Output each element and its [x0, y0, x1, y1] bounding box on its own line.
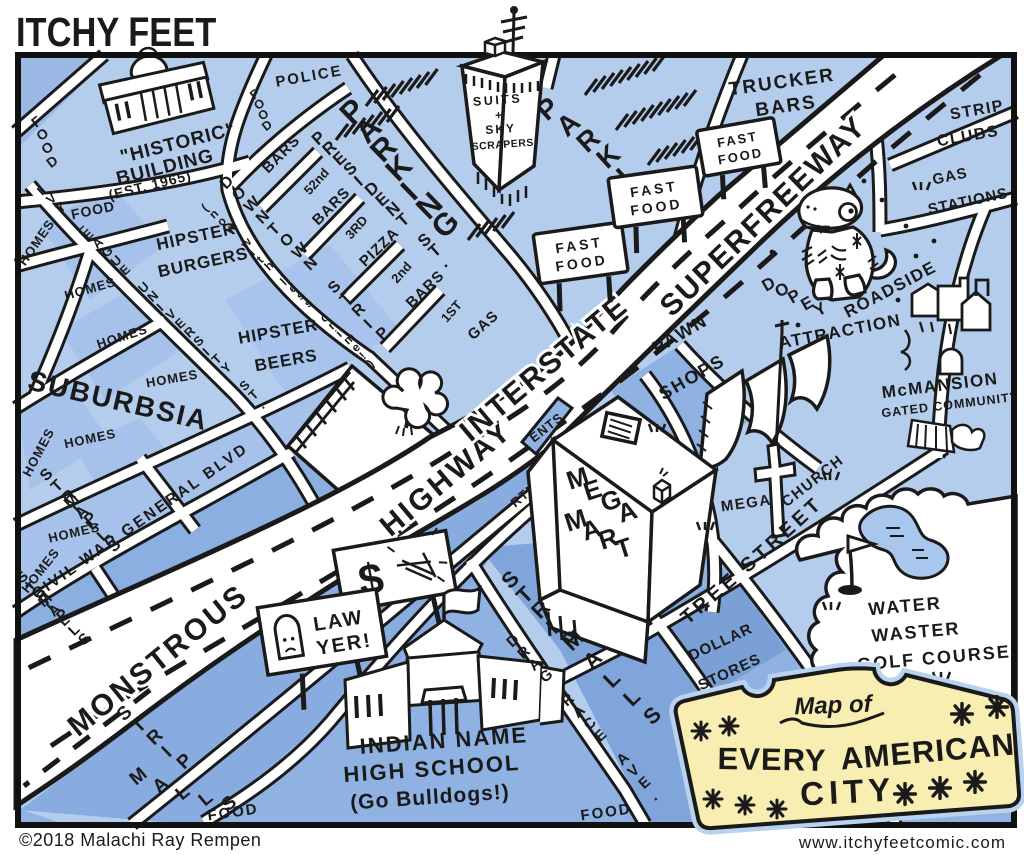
svg-text:ITCHY FEET: ITCHY FEET — [16, 10, 216, 55]
svg-text:CITY: CITY — [799, 771, 896, 813]
svg-text:+: + — [495, 108, 503, 122]
svg-text:©2018 Malachi Ray Rempen: ©2018 Malachi Ray Rempen — [19, 830, 261, 850]
svg-text:SKY: SKY — [485, 121, 517, 137]
svg-text:EVERY: EVERY — [717, 741, 827, 778]
svg-text:www.itchyfeetcomic.com: www.itchyfeetcomic.com — [798, 833, 1006, 852]
svg-text:Map of: Map of — [794, 691, 874, 721]
